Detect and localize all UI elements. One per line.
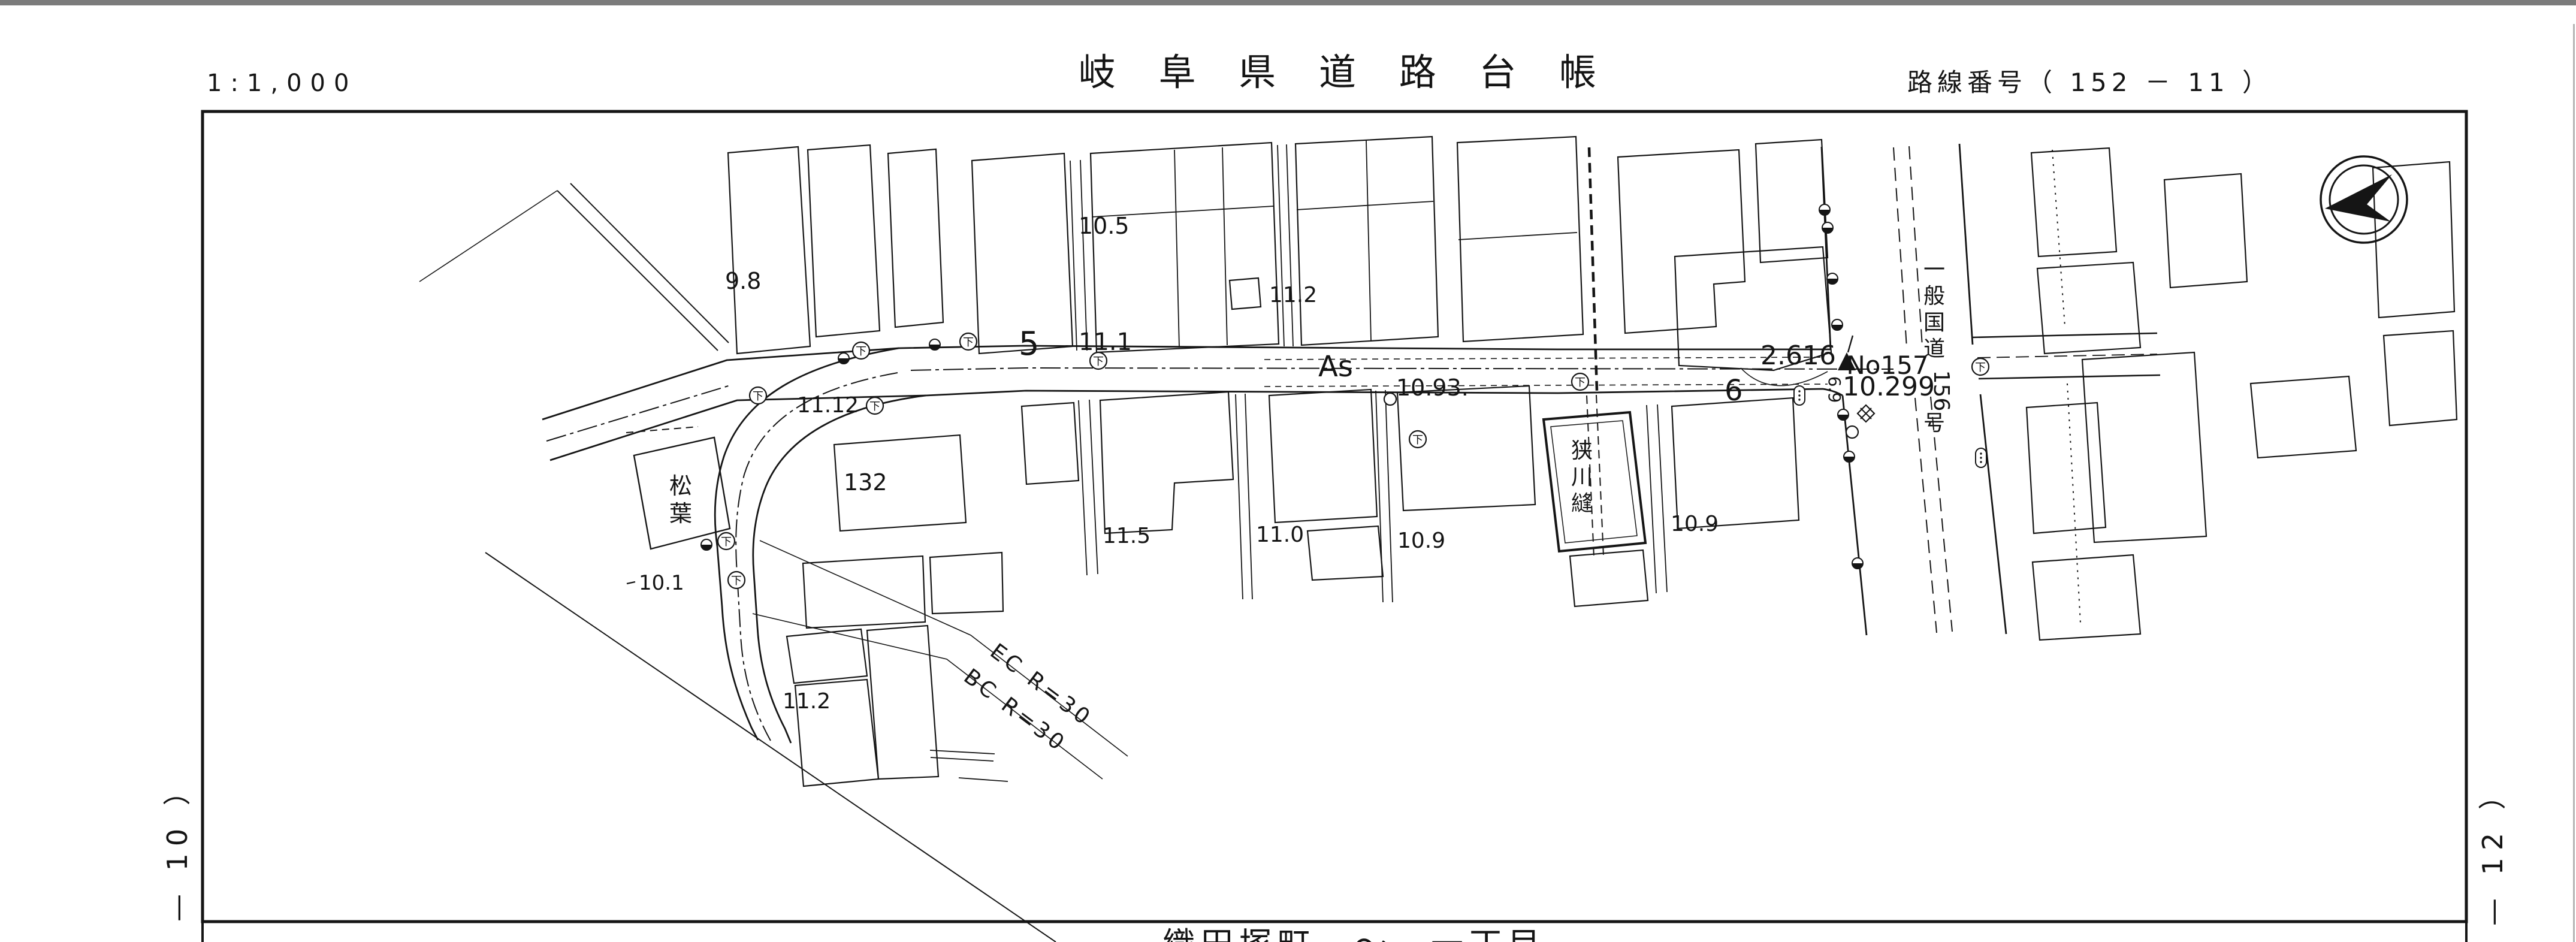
map-line [1245,394,1252,599]
map-line [1091,143,1279,352]
map-line [926,389,1843,395]
map-line [736,373,898,741]
map-line [930,552,1003,614]
map-line [419,191,557,282]
map-line [2033,555,2140,640]
map-label: 10.1 [639,571,684,595]
map-line [1269,390,1377,523]
map-canvas: 1:1,000 岐 阜 県 道 路 台 帳 路線番号（ 152 － 11 ） —… [0,0,2576,942]
north-arrow-icon [2321,156,2407,243]
survey-point-icon [1846,426,1858,438]
map-line [1022,403,1079,484]
map-label: 9.8 [725,268,761,294]
map-label: 川 [1571,465,1593,490]
manhole-icon: 下 [1093,355,1104,368]
map-line [1980,394,2006,634]
map-line [1100,392,1233,533]
map-label: 11.2 [1269,283,1317,307]
map-line [627,582,635,584]
map-line [1385,390,1393,602]
map-line [972,153,1073,354]
map-label: 11.2 [783,689,831,714]
marker-icon [1980,461,1982,463]
map-line [570,183,729,343]
map-label: 10.93. [1396,375,1469,401]
map-line [2251,376,2356,458]
map-line [808,145,880,337]
map-line [1079,400,1087,575]
map-line [2067,384,2080,623]
map-line [1596,395,1603,556]
map-label: 6.9 [1825,376,1844,403]
map-line [1366,140,1371,340]
map-line [1089,400,1098,574]
map-line [959,778,1008,781]
marker-icon [1980,457,1982,458]
map-line [728,147,810,354]
map-label: 156 [1929,370,1953,412]
map-line [1307,526,1383,580]
map-line [546,385,732,441]
map-annotations: 9.810.511.2511.1As10.93.62.616No15710.29… [639,213,1953,757]
map-line [753,395,926,743]
map-label: 11.0 [1256,523,1304,547]
map-label: 5 [1019,325,1039,363]
scan-edge-top [0,0,2576,5]
map-line [1973,333,2157,337]
map-line [2031,148,2116,256]
map-label: 10.5 [1079,213,1130,239]
map-line [1287,144,1293,346]
map-line [1570,550,1648,606]
map-line [1959,144,1973,345]
route-number-label: 路線番号（ 152 － 11 ） [1907,68,2272,97]
map-line [1230,278,1261,309]
manhole-icon: 下 [856,345,866,358]
scale-label: 1:1,000 [207,70,357,97]
manhole-icon: 下 [963,336,974,349]
map-line [1657,404,1667,592]
scan-edge-right [2573,24,2575,942]
map-line [888,149,943,327]
map-label: 6 [1725,374,1743,407]
map-label: 松 [669,473,692,499]
map-line [1979,375,2160,379]
map-line [1894,147,1907,348]
map-line [1647,405,1656,593]
map-label: 2.616 [1760,340,1836,371]
map-label: 国 [1923,310,1945,335]
survey-point-icon [1384,393,1396,405]
marker-icon [1798,390,1800,392]
map-label: 10.9 [1397,529,1445,553]
right-sheet-label: — 12 ） [2477,775,2509,926]
map-label: 号 [1923,411,1945,436]
bottom-section-label: 織田塚町 ～ 一丁目 [1162,925,1546,942]
map-line [1551,421,1637,543]
map-line [542,346,1831,419]
map-label: 道 [1923,337,1945,361]
map-line [1618,150,1745,333]
map-label: 132 [844,469,887,496]
benchmark-icon [1848,336,1853,352]
marker-icon [1798,398,1800,400]
map-label: As [1318,350,1353,384]
map-label: 10.299 [1843,372,1935,402]
map-line [1080,160,1087,351]
map-line [2373,162,2454,318]
map-line [1672,398,1799,529]
marker-icon [1980,452,1982,454]
map-label: 縫 [1571,491,1593,516]
manhole-icon: 下 [753,390,763,403]
map-line [931,757,993,761]
map-line [2037,262,2140,354]
map-label: 11.5 [1103,524,1150,548]
map-line [1264,384,1828,387]
page-title: 岐 阜 県 道 路 台 帳 [1079,50,1612,94]
manhole-icon: 下 [1575,376,1586,389]
map-line [1236,394,1243,599]
marker-icon [1798,394,1800,396]
map-line [1174,150,1179,348]
map-label: 11.1 [1079,328,1132,356]
map-line [1589,147,1597,391]
road-ledger-sheet: 1:1,000 岐 阜 県 道 路 台 帳 路線番号（ 152 － 11 ） —… [0,0,2576,942]
manhole-icon: 下 [721,536,732,548]
map-line [1278,145,1284,346]
map-line [1222,147,1227,345]
manhole-icon: 下 [731,575,742,587]
map-line [2384,331,2457,425]
map-line [1909,146,1922,346]
map-label: 10.9 [1671,512,1719,536]
left-sheet-label: — 10 ） [161,771,194,922]
map-line [1297,201,1433,210]
map-line [803,556,925,628]
map-line [2027,403,2106,533]
manhole-icon: 下 [1975,361,1986,374]
map-label: 葉 [669,500,692,527]
map-label: 11.12 [797,393,859,418]
map-label: 一 [1923,258,1945,282]
map-line [930,750,995,754]
map-label: 狭 [1571,439,1593,463]
map-line [1458,233,1577,240]
map-line [2052,150,2065,327]
manhole-icon: 下 [1412,434,1423,446]
map-frame [203,111,2466,942]
map-label: 般 [1923,284,1945,309]
map-line [485,552,1056,942]
manhole-icon: 下 [869,400,880,413]
map-line [557,191,718,351]
map-line [2164,174,2247,288]
map-line [1756,140,1828,262]
